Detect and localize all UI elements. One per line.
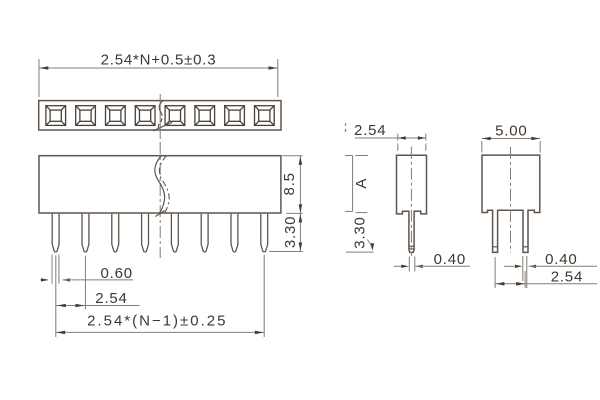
svg-text:0.40: 0.40 [545, 251, 577, 268]
svg-text:8.5: 8.5 [281, 172, 298, 195]
svg-text:A: A [353, 178, 370, 189]
svg-text:0.40: 0.40 [434, 251, 466, 268]
svg-text:2.54*N+0.5±0.3: 2.54*N+0.5±0.3 [101, 52, 217, 69]
svg-text:3.30: 3.30 [282, 216, 299, 248]
svg-text:5.00: 5.00 [495, 123, 527, 140]
svg-text:2.54: 2.54 [354, 122, 386, 139]
svg-text:0.60: 0.60 [100, 265, 132, 282]
svg-text:2.54*(N−1)±0.25: 2.54*(N−1)±0.25 [87, 312, 227, 329]
svg-text:2.54: 2.54 [551, 268, 583, 285]
svg-text:3.30: 3.30 [352, 216, 369, 248]
svg-text:2.54: 2.54 [95, 290, 127, 307]
